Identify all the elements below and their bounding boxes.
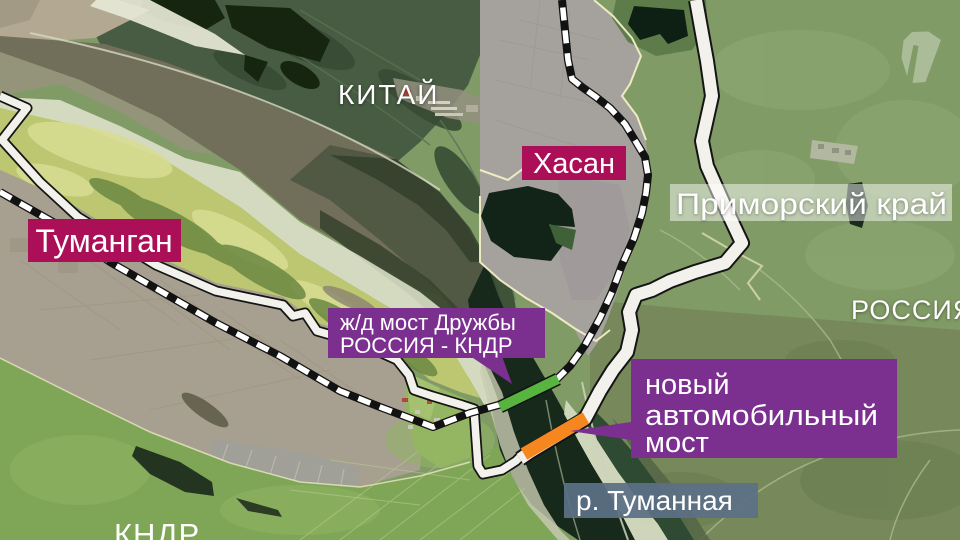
svg-text:р. Туманная: р. Туманная (576, 485, 733, 516)
svg-text:новый: новый (645, 369, 730, 401)
svg-text:КИТАЙ: КИТАЙ (338, 79, 439, 110)
svg-text:Хасан: Хасан (533, 148, 615, 180)
svg-text:РОССИЯ: РОССИЯ (851, 295, 960, 325)
svg-text:Приморский край: Приморский край (676, 188, 947, 221)
svg-text:КНДР: КНДР (114, 517, 200, 540)
svg-text:Туманган: Туманган (35, 223, 172, 259)
svg-text:мост: мост (645, 427, 709, 459)
svg-text:РОССИЯ - КНДР: РОССИЯ - КНДР (340, 333, 513, 358)
svg-text:ж/д мост Дружбы: ж/д мост Дружбы (340, 310, 516, 335)
